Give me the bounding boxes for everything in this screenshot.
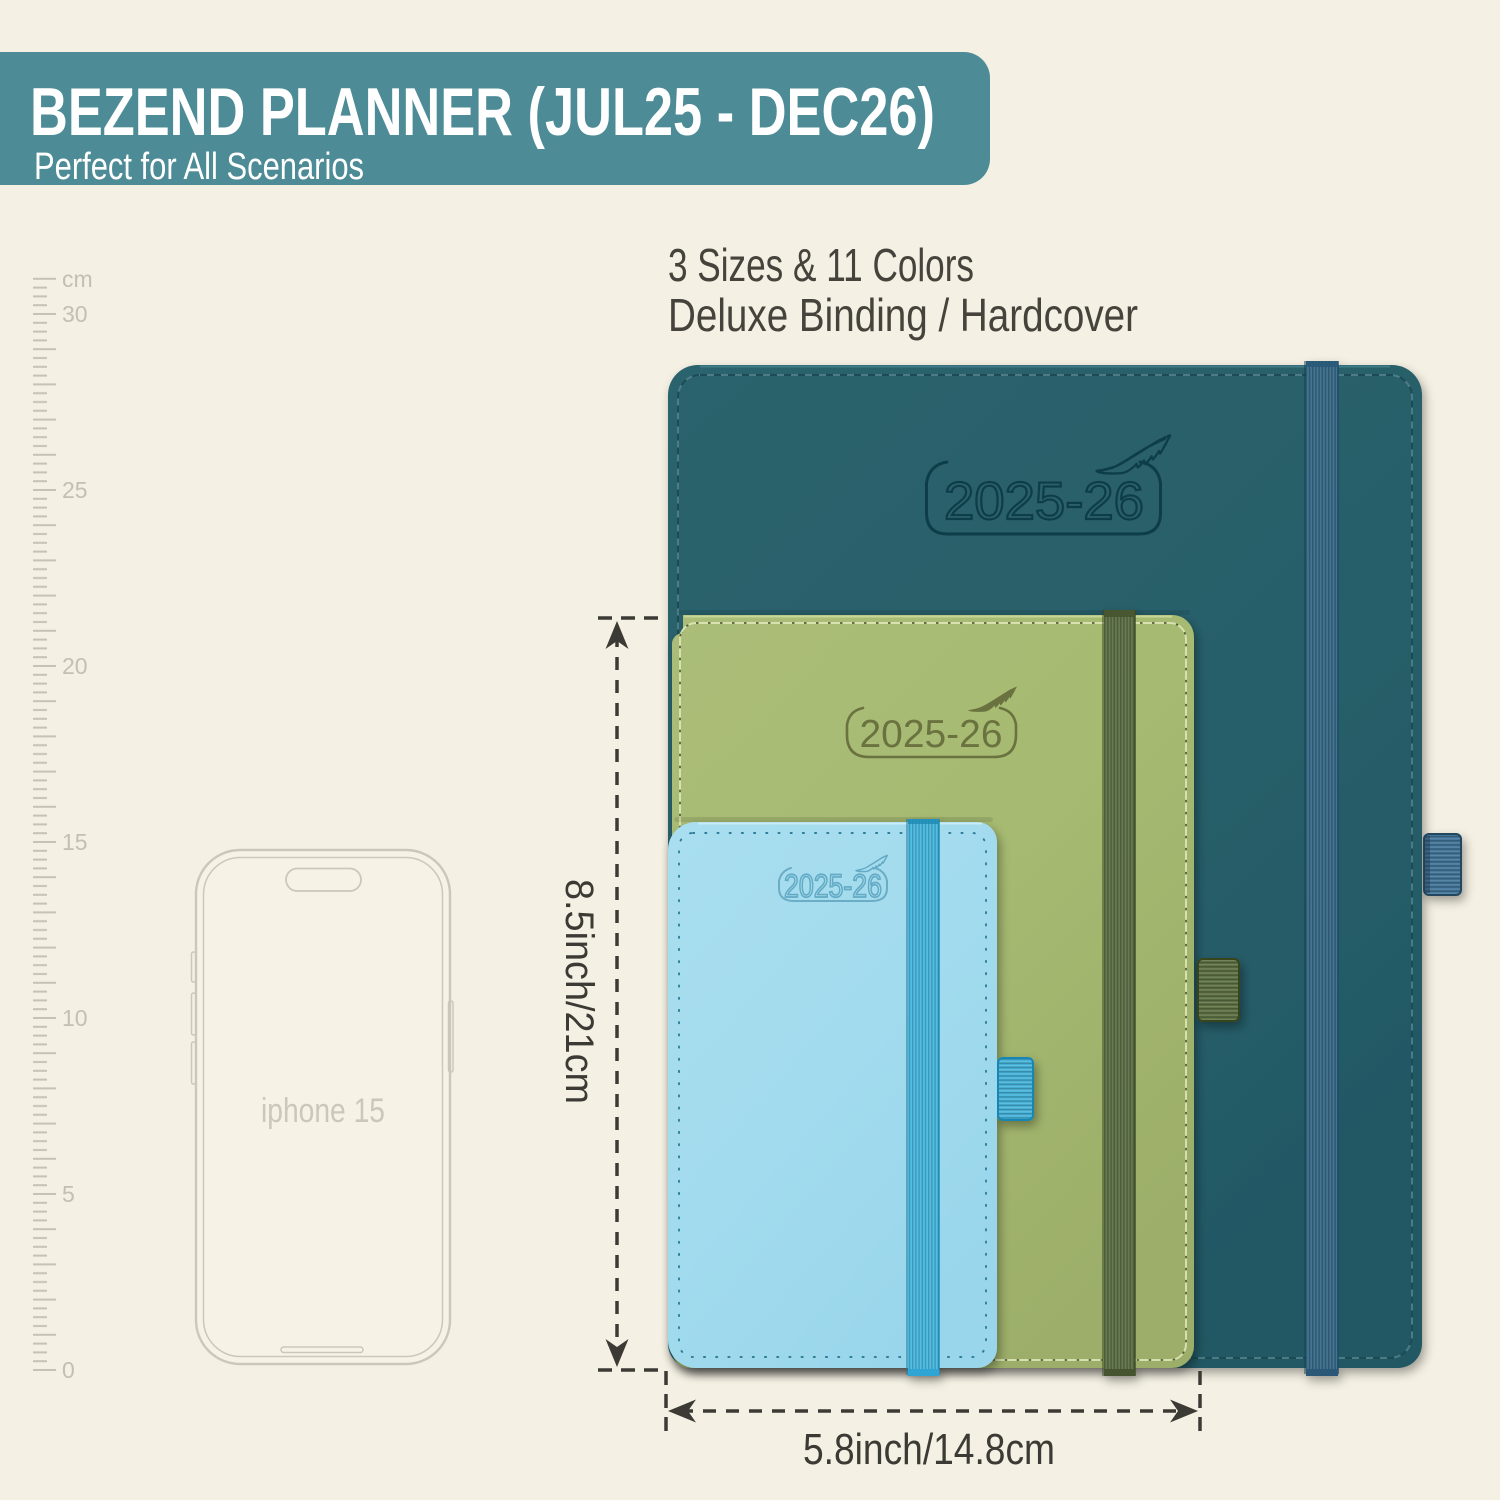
svg-text:Deluxe Binding / Hardcover: Deluxe Binding / Hardcover: [668, 289, 1138, 341]
svg-text:25: 25: [62, 477, 88, 503]
svg-text:0: 0: [62, 1357, 75, 1383]
svg-text:cm: cm: [62, 266, 93, 292]
svg-text:5: 5: [62, 1181, 75, 1207]
svg-text:2025-26: 2025-26: [944, 472, 1144, 531]
svg-text:20: 20: [62, 653, 88, 679]
svg-text:30: 30: [62, 301, 88, 327]
svg-text:Perfect for All Scenarios: Perfect for All Scenarios: [34, 146, 364, 188]
svg-text:iphone 15: iphone 15: [261, 1092, 385, 1130]
svg-text:2025-26: 2025-26: [860, 713, 1003, 756]
svg-text:2025-26: 2025-26: [784, 868, 882, 904]
svg-text:5.8inch/14.8cm: 5.8inch/14.8cm: [803, 1425, 1055, 1474]
svg-text:3 Sizes & 11 Colors: 3 Sizes & 11 Colors: [668, 239, 974, 291]
svg-text:BEZEND PLANNER (JUL25 - DEC26): BEZEND PLANNER (JUL25 - DEC26): [30, 74, 935, 150]
svg-text:8.5inch/21cm: 8.5inch/21cm: [557, 879, 601, 1104]
svg-text:10: 10: [62, 1005, 88, 1031]
svg-text:15: 15: [62, 829, 88, 855]
